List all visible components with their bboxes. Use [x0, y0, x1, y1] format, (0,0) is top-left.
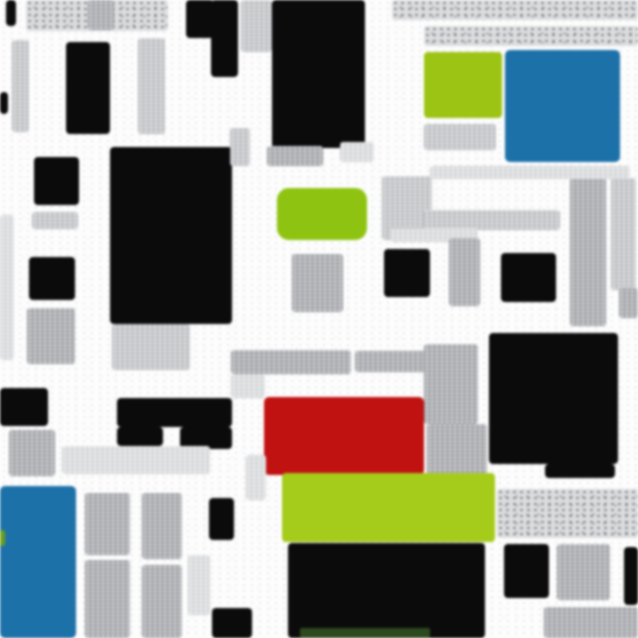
top-right-texture-band-1	[392, 0, 638, 20]
center-black-square-2	[501, 253, 556, 302]
bottom-left-texture-col-3	[188, 555, 210, 615]
green-sliver-left-edge	[0, 530, 5, 546]
center-black-square-1	[384, 249, 430, 297]
center-texture-block	[292, 254, 343, 312]
blur-layer	[0, 0, 638, 638]
mosaic-canvas	[0, 0, 638, 638]
bottom-center-black-mass	[288, 543, 485, 638]
blue-block-bottom-left	[0, 486, 76, 638]
left-texture-column-2	[138, 38, 165, 134]
top-left-dark-tick	[6, 0, 16, 26]
texture-above-green	[267, 146, 323, 166]
texture-column-230	[230, 128, 250, 166]
texture-band-mid-2	[355, 351, 428, 372]
big-black-square	[489, 333, 618, 464]
bottom-right-black-edge-strip	[624, 547, 638, 605]
texture-below-black-mass	[112, 324, 190, 370]
blue-block-top-right	[505, 50, 620, 162]
right-texture-column-2	[611, 178, 636, 290]
left-black-band	[0, 388, 48, 426]
left-edge-black-notch	[0, 92, 8, 114]
bottom-green-tinge	[300, 628, 430, 638]
green-center-block	[277, 188, 367, 240]
texture-below-lime	[424, 124, 496, 150]
mid-left-texture-column	[27, 308, 75, 364]
left-black-block-2	[34, 157, 79, 205]
left-texture-block-430	[9, 430, 55, 476]
left-edge-texture-strip	[0, 215, 14, 360]
bottom-left-texture-col-2b	[142, 565, 182, 638]
big-black-extension	[545, 464, 615, 478]
bottom-right-texture-band-bottom	[544, 607, 638, 638]
texture-column-248	[246, 455, 266, 500]
top-black-notch	[186, 0, 214, 38]
right-texture-band	[430, 166, 630, 179]
top-center-black-block	[272, 0, 365, 148]
lime-block-top-right	[424, 52, 502, 118]
top-black-column	[211, 0, 238, 77]
texture-band-center-top	[424, 210, 560, 230]
bottom-black-small-1	[209, 498, 234, 540]
black-chunk-2	[117, 427, 163, 446]
green-band	[282, 473, 495, 542]
top-left-texture-streak	[88, 0, 114, 30]
texture-above-green-2	[340, 142, 374, 162]
red-block	[264, 397, 424, 475]
texture-block-left-of-big-black	[424, 344, 478, 424]
center-texture-column	[449, 238, 480, 306]
texture-small-232	[231, 374, 265, 398]
bottom-right-black-square	[504, 544, 549, 598]
center-left-black-mass	[110, 147, 232, 324]
right-texture-column-1	[570, 178, 606, 326]
left-texture-column-1	[12, 40, 29, 132]
bottom-right-texture-band-top	[497, 489, 638, 538]
bottom-left-texture-col-1a	[85, 493, 130, 555]
bottom-black-small-2	[212, 608, 252, 638]
texture-band-448	[62, 446, 210, 474]
bottom-left-texture-col-1b	[85, 560, 130, 638]
black-chunk-1	[117, 398, 232, 427]
top-right-texture-band-2	[424, 26, 638, 46]
bottom-right-texture-column	[557, 544, 610, 600]
top-texture-column	[241, 0, 272, 52]
right-edge-gray-block	[619, 288, 638, 318]
left-black-block	[66, 42, 110, 134]
mid-left-black-square	[29, 257, 75, 300]
texture-right-of-red	[427, 424, 487, 476]
bottom-left-texture-col-2a	[142, 493, 182, 559]
mid-left-texture-band	[32, 212, 78, 229]
texture-band-mid-1	[231, 350, 351, 374]
